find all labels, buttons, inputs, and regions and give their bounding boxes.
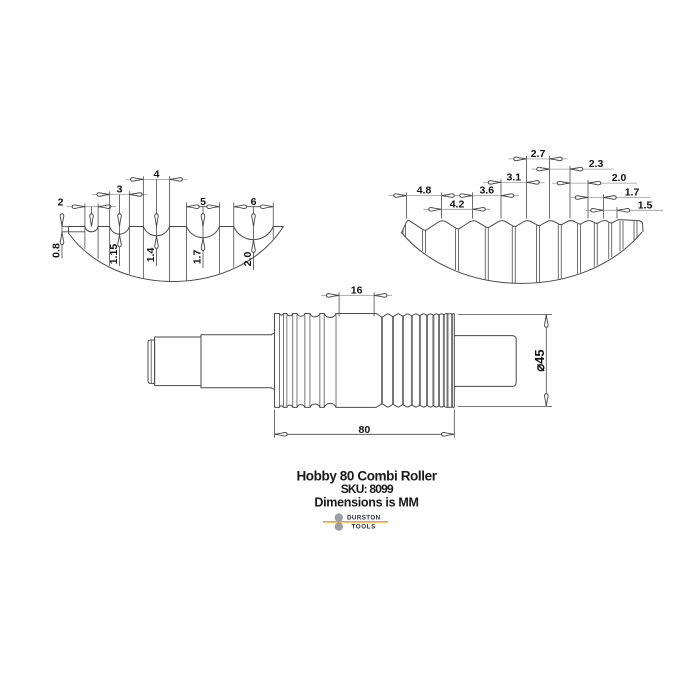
svg-text:DURSTON: DURSTON bbox=[347, 515, 381, 522]
svg-text:2.3: 2.3 bbox=[589, 158, 604, 170]
svg-text:TOOLS: TOOLS bbox=[352, 524, 376, 531]
svg-text:⌀45: ⌀45 bbox=[532, 349, 547, 371]
svg-text:SKU: 8099: SKU: 8099 bbox=[341, 482, 394, 496]
svg-text:2: 2 bbox=[58, 196, 64, 208]
svg-text:1.5: 1.5 bbox=[638, 199, 653, 211]
svg-text:5: 5 bbox=[200, 196, 206, 208]
svg-text:4.2: 4.2 bbox=[450, 198, 465, 210]
svg-text:1.4: 1.4 bbox=[145, 248, 157, 263]
svg-text:2.7: 2.7 bbox=[531, 148, 546, 160]
svg-text:1.7: 1.7 bbox=[625, 187, 640, 199]
svg-text:3: 3 bbox=[117, 184, 123, 196]
svg-text:1.15: 1.15 bbox=[108, 244, 120, 265]
svg-text:16: 16 bbox=[351, 285, 363, 297]
svg-text:3.6: 3.6 bbox=[479, 185, 494, 197]
svg-text:2.0: 2.0 bbox=[612, 172, 627, 184]
svg-text:4: 4 bbox=[154, 169, 160, 181]
svg-text:4.8: 4.8 bbox=[417, 185, 432, 197]
svg-text:0.8: 0.8 bbox=[51, 243, 63, 258]
svg-text:Dimensions is MM: Dimensions is MM bbox=[314, 495, 418, 509]
svg-text:1.7: 1.7 bbox=[191, 250, 203, 265]
svg-text:80: 80 bbox=[359, 424, 371, 436]
svg-text:6: 6 bbox=[251, 196, 257, 208]
svg-text:3.1: 3.1 bbox=[506, 172, 521, 184]
svg-text:2.0: 2.0 bbox=[242, 252, 254, 267]
